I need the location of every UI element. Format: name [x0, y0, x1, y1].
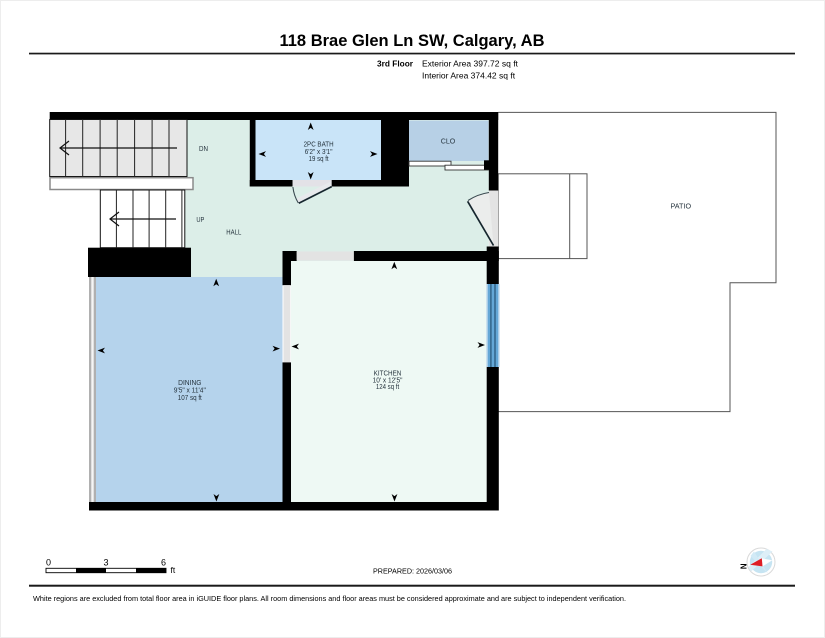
svg-text:3rd Floor: 3rd Floor — [377, 59, 414, 69]
svg-text:DN: DN — [199, 146, 208, 153]
svg-text:Exterior Area 397.72 sq ft: Exterior Area 397.72 sq ft — [422, 59, 519, 69]
svg-text:White regions are excluded fro: White regions are excluded from total fl… — [33, 594, 626, 603]
svg-text:KITCHEN: KITCHEN — [374, 369, 402, 378]
svg-text:N: N — [739, 563, 748, 569]
svg-text:0: 0 — [46, 558, 51, 568]
svg-text:107 sq ft: 107 sq ft — [178, 395, 202, 402]
svg-text:DINING: DINING — [178, 378, 202, 387]
svg-text:6'2" x 3'1": 6'2" x 3'1" — [305, 149, 333, 156]
svg-text:PREPARED: 2026/03/06: PREPARED: 2026/03/06 — [373, 567, 452, 576]
svg-text:124 sq ft: 124 sq ft — [376, 384, 399, 391]
svg-text:9'5" x 11'4": 9'5" x 11'4" — [174, 388, 206, 395]
svg-text:CLO: CLO — [441, 139, 456, 146]
svg-text:ft: ft — [171, 565, 176, 575]
svg-text:UP: UP — [196, 217, 204, 224]
svg-text:Interior Area 374.42 sq ft: Interior Area 374.42 sq ft — [422, 70, 516, 80]
svg-text:HALL: HALL — [226, 230, 241, 237]
svg-text:19 sq ft: 19 sq ft — [309, 156, 329, 163]
svg-text:3: 3 — [103, 558, 108, 568]
svg-text:2PC BATH: 2PC BATH — [304, 140, 334, 149]
svg-text:6: 6 — [161, 558, 166, 568]
svg-text:118 Brae Glen Ln SW, Calgary,: 118 Brae Glen Ln SW, Calgary, AB — [279, 32, 544, 50]
svg-text:PATIO: PATIO — [671, 203, 692, 210]
